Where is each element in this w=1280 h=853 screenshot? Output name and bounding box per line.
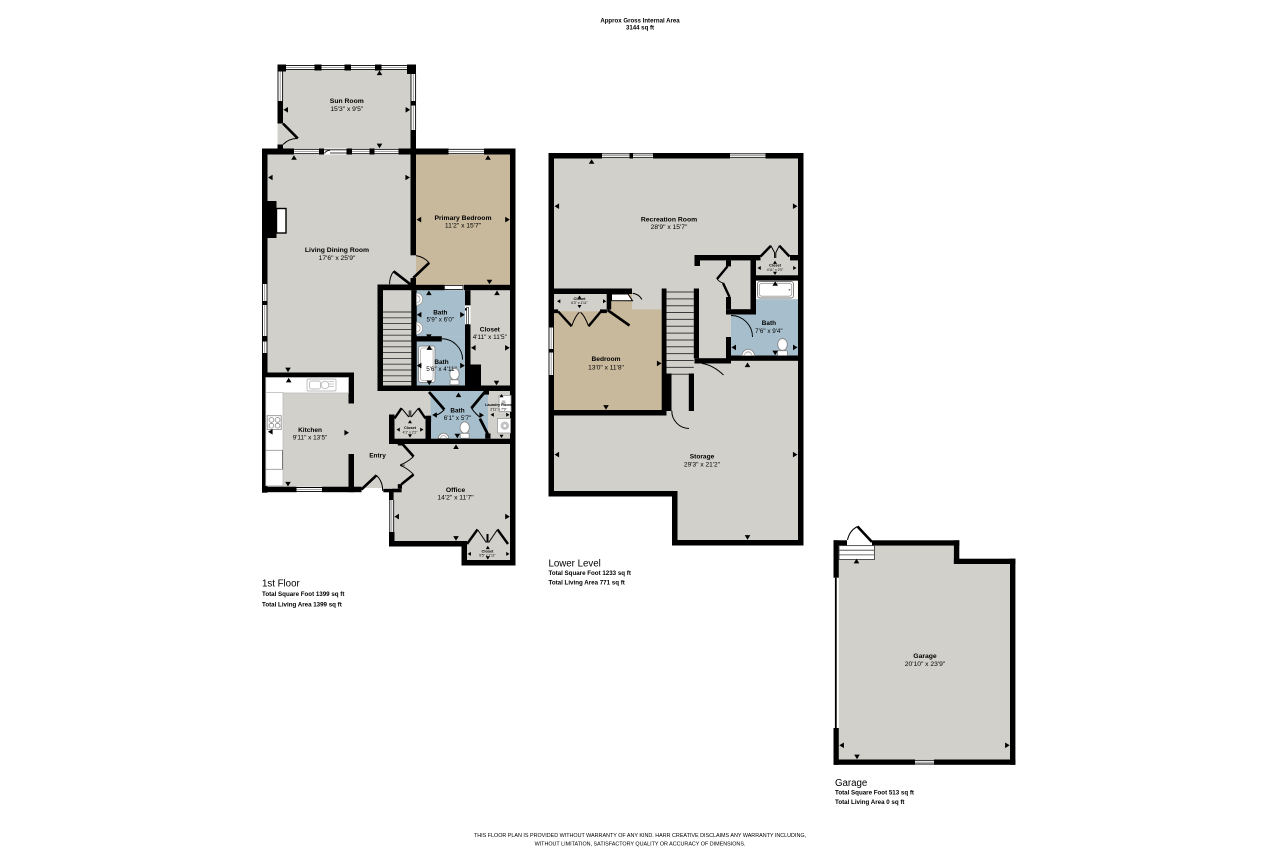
svg-text:1st Floor: 1st Floor <box>262 579 300 590</box>
svg-text:Total Square Foot 1399 sq ft: Total Square Foot 1399 sq ft <box>262 591 344 598</box>
svg-text:3144 sq ft: 3144 sq ft <box>626 25 654 32</box>
svg-text:13'0" x 11'8": 13'0" x 11'8" <box>588 364 624 371</box>
svg-text:2'11" x 7'9": 2'11" x 7'9" <box>490 407 507 411</box>
svg-text:Bedroom: Bedroom <box>592 356 621 363</box>
svg-text:Bath: Bath <box>450 407 464 414</box>
svg-text:Bath: Bath <box>762 320 776 327</box>
svg-text:Garage: Garage <box>835 778 867 789</box>
svg-text:4'11" x 2'0": 4'11" x 2'0" <box>767 268 784 272</box>
svg-text:6'3" x 1'11": 6'3" x 1'11" <box>571 301 588 305</box>
svg-text:Storage: Storage <box>690 453 715 460</box>
svg-text:Closet: Closet <box>404 425 417 430</box>
svg-text:11'2" x 15'7": 11'2" x 15'7" <box>445 223 482 230</box>
svg-text:Total Living Area 1399 sq ft: Total Living Area 1399 sq ft <box>262 601 342 608</box>
svg-text:Garage: Garage <box>913 653 937 660</box>
svg-text:Approx Gross Internal Area: Approx Gross Internal Area <box>600 18 680 25</box>
svg-text:Total Living Area 771 sq ft: Total Living Area 771 sq ft <box>549 579 625 586</box>
svg-text:Lower Level: Lower Level <box>549 559 601 570</box>
svg-text:Sun Room: Sun Room <box>330 98 364 105</box>
svg-text:5'9" x 6'0": 5'9" x 6'0" <box>427 316 455 323</box>
svg-text:Entry: Entry <box>369 453 386 460</box>
svg-text:Total Square Foot 513 sq ft: Total Square Foot 513 sq ft <box>835 789 914 796</box>
svg-text:9'11" x 13'5": 9'11" x 13'5" <box>293 435 328 442</box>
svg-text:WITHOUT LIMITATION, SATISFACTO: WITHOUT LIMITATION, SATISFACTORY QUALITY… <box>535 842 746 848</box>
svg-text:14'2" x 11'7": 14'2" x 11'7" <box>437 494 474 501</box>
svg-text:5'6" x 4'11": 5'6" x 4'11" <box>426 366 457 373</box>
svg-text:Total Square Foot 1233 sq ft: Total Square Foot 1233 sq ft <box>549 570 631 577</box>
svg-text:6'1" x 5'7": 6'1" x 5'7" <box>444 415 472 422</box>
svg-text:17'6" x 25'9": 17'6" x 25'9" <box>319 255 356 262</box>
svg-text:Kitchen: Kitchen <box>298 427 322 434</box>
svg-text:7'6" x 9'4": 7'6" x 9'4" <box>755 328 783 335</box>
svg-text:15'3" x 9'5": 15'3" x 9'5" <box>330 106 364 113</box>
svg-text:THIS FLOOR PLAN IS PROVIDED WI: THIS FLOOR PLAN IS PROVIDED WITHOUT WARR… <box>474 833 807 839</box>
svg-text:Closet: Closet <box>480 327 501 334</box>
svg-text:4'11" x 11'5": 4'11" x 11'5" <box>473 334 507 341</box>
svg-text:4'1" x 2'2": 4'1" x 2'2" <box>403 430 419 434</box>
svg-text:28'9" x 15'7": 28'9" x 15'7" <box>651 224 688 231</box>
svg-text:29'3" x 21'2": 29'3" x 21'2" <box>684 461 721 468</box>
svg-text:20'10" x 23'9": 20'10" x 23'9" <box>905 661 946 668</box>
svg-text:Living Dining Room: Living Dining Room <box>305 247 369 254</box>
svg-text:Recreation Room: Recreation Room <box>641 216 697 223</box>
svg-text:Office: Office <box>446 487 465 494</box>
svg-text:Primary Bedroom: Primary Bedroom <box>434 215 491 222</box>
svg-text:Total Living Area 0 sq ft: Total Living Area 0 sq ft <box>835 799 904 806</box>
